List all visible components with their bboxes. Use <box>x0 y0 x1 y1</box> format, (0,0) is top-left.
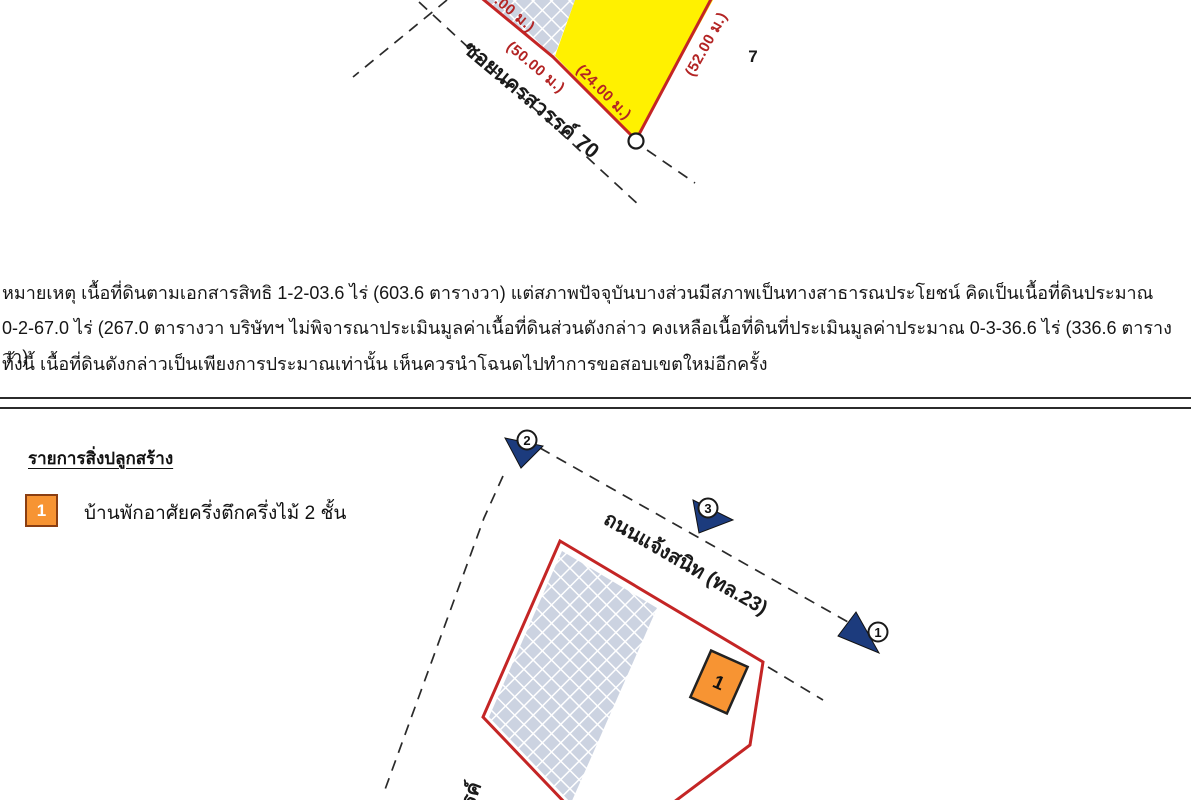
photo-marker-1-number: 1 <box>874 625 881 640</box>
photo-marker-2: 2 <box>505 431 543 469</box>
road-junction-dashed-line <box>353 0 447 77</box>
note-line-3: ทั้งนี้ เนื้อที่ดินดังกล่าวเป็นเพียงการป… <box>2 349 768 378</box>
photo-marker-2-number: 2 <box>523 433 530 448</box>
site-plan-diagram: 1 2 3 1 <box>0 420 1191 800</box>
photo-marker-3: 3 <box>693 499 733 534</box>
photo-marker-3-number: 3 <box>704 501 711 516</box>
note-line-1: หมายเหตุ เนื้อที่ดินตามเอกสารสิทธิ 1-2-0… <box>2 278 1153 307</box>
plot-corner-dashed-line <box>768 667 823 700</box>
side-soi-dashed-line <box>383 476 503 795</box>
boundary-continuation-dashed-line <box>647 150 695 183</box>
appraisal-document-page: (26.00 ม.) (50.00 ม.) (24.00 ม.) (52.00 … <box>0 0 1191 800</box>
survey-corner-marker <box>629 134 644 149</box>
adjacent-plot-number: 7 <box>748 47 757 67</box>
photo-marker-1: 1 <box>838 612 888 653</box>
section-divider <box>0 397 1191 409</box>
